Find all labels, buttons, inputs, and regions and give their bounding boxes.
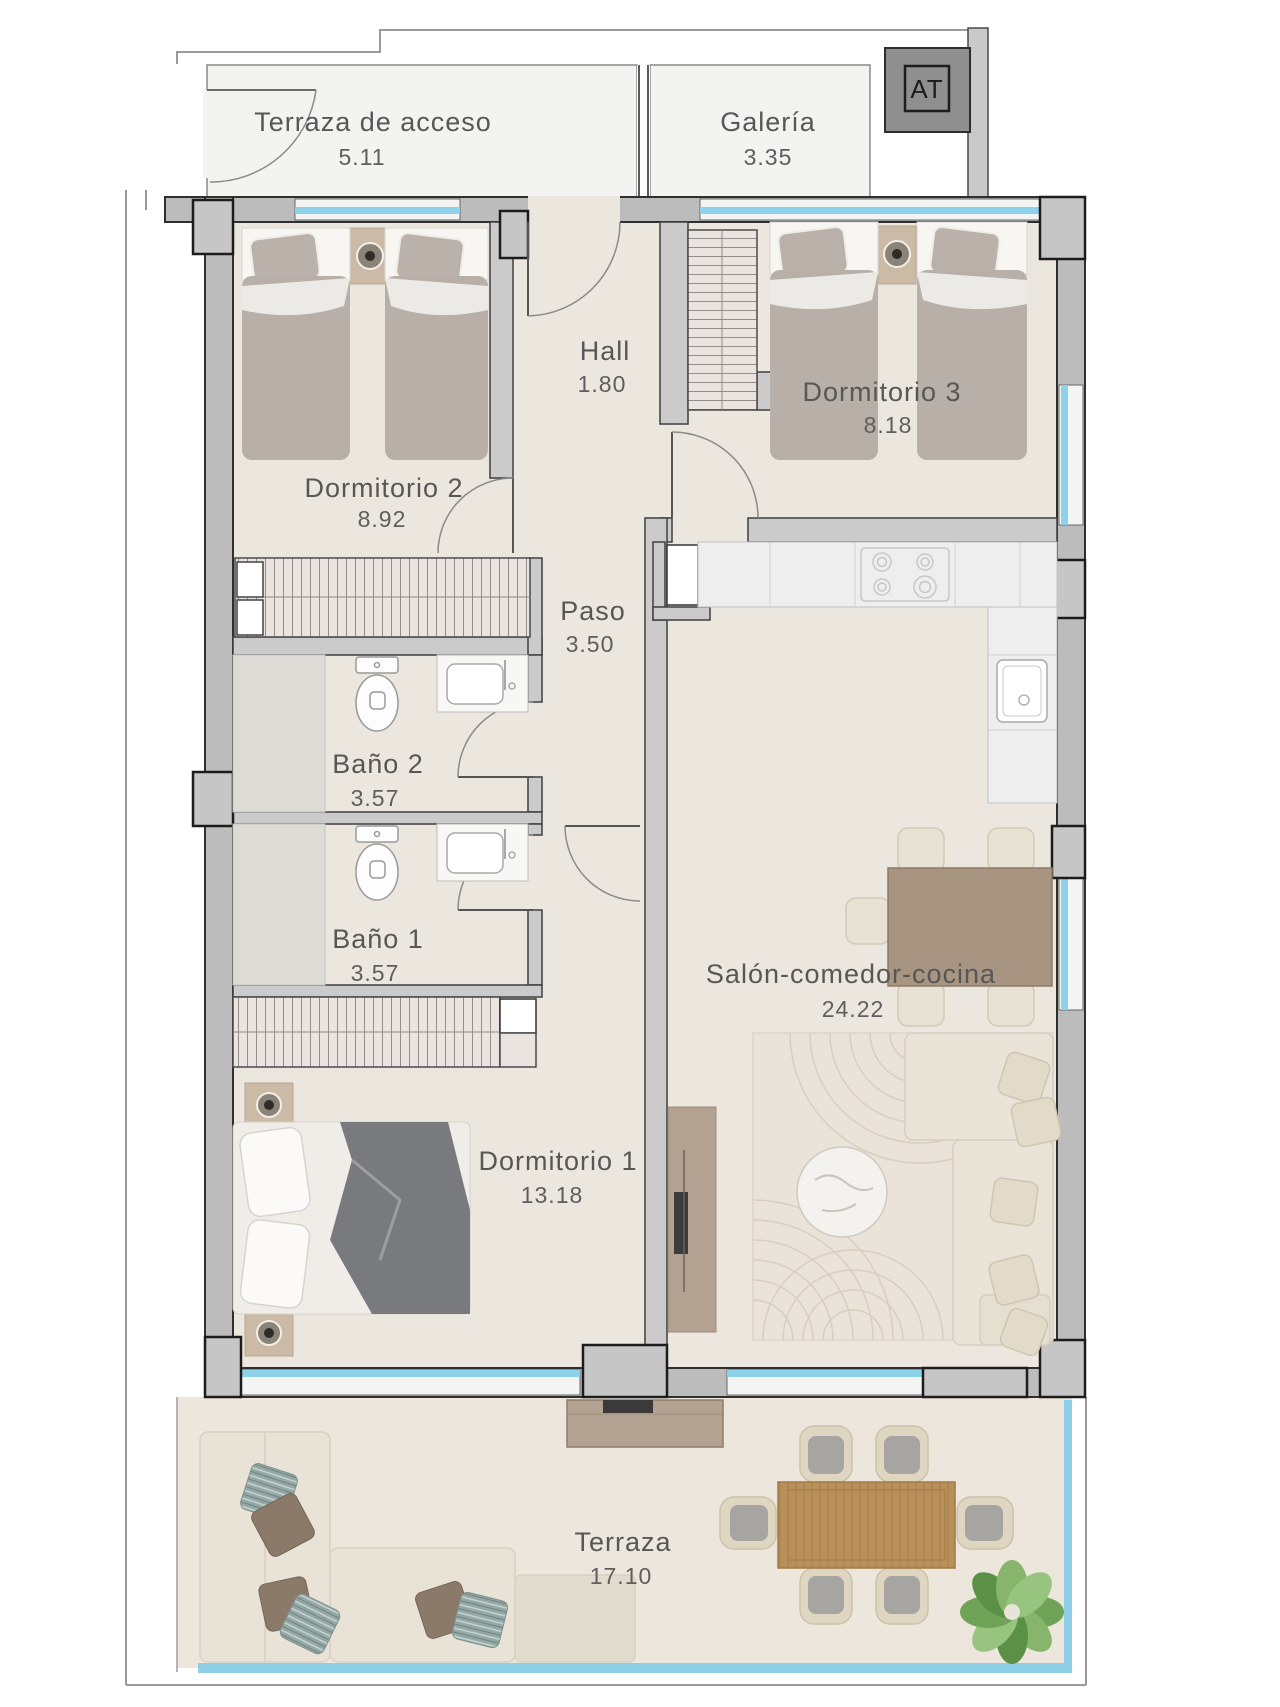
wardrobe-dormitorio-2-icon	[235, 558, 530, 637]
floor-plan: Terraza de acceso 5.11 Galería 3.35 AT	[0, 0, 1280, 1707]
galeria-partition-wall	[637, 65, 650, 197]
column	[193, 200, 233, 254]
room-label-bano-2: Baño 2	[332, 749, 424, 779]
column	[923, 1368, 1027, 1397]
double-bed-icon	[233, 1122, 470, 1314]
column	[205, 1337, 241, 1397]
room-label-paso: Paso	[560, 596, 626, 626]
window-salon-right	[1059, 877, 1083, 1010]
bed-icon	[385, 228, 488, 460]
window-dormitorio-3-right	[1059, 385, 1083, 525]
wall-bano2-east-a	[528, 655, 542, 702]
at-shaft: AT	[885, 28, 988, 197]
entrance-opening	[528, 196, 620, 223]
room-area-paso: 3.50	[566, 631, 615, 657]
room-label-terraza: Terraza	[574, 1527, 671, 1557]
terrace-table-icon	[778, 1482, 955, 1568]
wall-appliance-bottom	[653, 607, 710, 620]
wall-dorm2-hall	[490, 222, 513, 478]
room-area-bano-2: 3.57	[351, 785, 400, 811]
wall-bano-divider	[233, 812, 542, 824]
room-area-bano-1: 3.57	[351, 960, 400, 986]
room-area-dormitorio-1: 13.18	[521, 1182, 584, 1208]
lamp-icon	[365, 251, 375, 261]
wall-right	[1057, 197, 1085, 1397]
room-label-dormitorio-2: Dormitorio 2	[304, 473, 463, 503]
closet-hall-icon	[688, 230, 757, 410]
kitchen-appliance-icon	[667, 545, 698, 605]
wall-corridor-east	[645, 518, 667, 1345]
tv-icon	[603, 1400, 653, 1413]
shower-tray-bano2	[233, 655, 325, 812]
column	[193, 772, 233, 826]
kitchen-sink-icon	[997, 660, 1047, 722]
wall-bano2-east-b	[528, 777, 542, 812]
window-dormitorio-3-top	[700, 199, 1040, 220]
bed-icon	[242, 228, 350, 460]
wall-bano1-east-a	[528, 824, 542, 835]
kitchen-counter-top	[698, 542, 1057, 607]
column	[1040, 1340, 1085, 1397]
room-area-dormitorio-3: 8.18	[864, 412, 913, 438]
lamp-icon	[892, 249, 902, 259]
room-area-salon: 24.22	[822, 996, 885, 1022]
entry-door-gap	[203, 90, 211, 178]
wall-bano1-east-b	[528, 910, 542, 985]
room-label-dormitorio-3: Dormitorio 3	[802, 377, 961, 407]
lamp-icon	[264, 1100, 274, 1110]
room-label-hall: Hall	[580, 336, 631, 366]
room-label-salon: Salón-comedor-cocina	[706, 959, 996, 989]
room-terraza-de-acceso: Terraza de acceso 5.11	[203, 65, 637, 197]
bed-icon	[917, 222, 1027, 460]
room-label-dormitorio-1: Dormitorio 1	[478, 1146, 637, 1176]
room-label-bano-1: Baño 1	[332, 924, 424, 954]
column	[500, 211, 528, 258]
wall-bano2-top	[233, 637, 542, 655]
shower-tray-bano1	[233, 824, 325, 985]
toilet-icon-bano1	[356, 826, 398, 900]
lamp-icon	[264, 1328, 274, 1338]
wall-hall-east	[660, 222, 688, 424]
window-dormitorio-2-top	[295, 199, 460, 220]
bed-icon	[770, 222, 878, 460]
window-dormitorio-1-bottom	[240, 1370, 580, 1395]
at-shaft-label: AT	[910, 74, 943, 104]
room-area-terraza-acceso: 5.11	[338, 144, 385, 170]
column	[1052, 826, 1085, 878]
room-galeria: Galería 3.35	[637, 65, 870, 197]
coffee-table-icon	[797, 1147, 887, 1237]
floor-plan-page: Terraza de acceso 5.11 Galería 3.35 AT	[0, 0, 1280, 1707]
wall-bano1-bottom	[233, 985, 542, 997]
tv-unit-icon	[668, 1107, 716, 1332]
tv-icon	[674, 1192, 688, 1254]
sink-icon-bano2	[437, 655, 528, 712]
column	[583, 1345, 667, 1397]
toilet-icon-bano2	[356, 657, 398, 731]
plant-icon	[960, 1560, 1064, 1664]
wall-kitchen-top	[748, 518, 1057, 542]
room-area-galeria: 3.35	[744, 144, 793, 170]
room-area-terraza: 17.10	[590, 1563, 653, 1589]
terrace-sideboard-icon	[567, 1400, 723, 1447]
room-area-dormitorio-2: 8.92	[358, 506, 407, 532]
room-label-galeria: Galería	[720, 107, 816, 137]
room-label-terraza-acceso: Terraza de acceso	[254, 107, 492, 137]
column	[1040, 197, 1085, 259]
window-salon-bottom	[727, 1370, 923, 1395]
room-area-hall: 1.80	[578, 371, 627, 397]
sink-icon-bano1	[437, 824, 528, 881]
wardrobe-dormitorio-1-icon	[233, 997, 536, 1067]
